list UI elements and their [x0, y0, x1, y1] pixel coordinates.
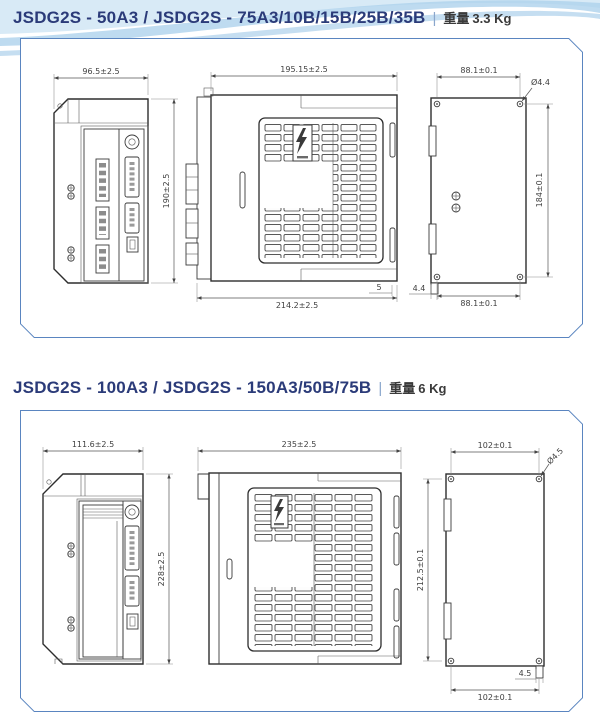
dim-side-offset: 5	[376, 283, 381, 292]
rear-view: 102±0.1 Ø4.5 212.5±0.1 102±0.1	[416, 441, 565, 702]
section1-title-separator: |	[432, 10, 436, 27]
section1-panel-inner: 96.5±2.5 190±2.5	[21, 39, 582, 337]
section1-model-title: JSDG2S - 50A3 / JSDG2S - 75A3/10B/15B/25…	[13, 8, 425, 28]
section1-weight-value: 3.3 Kg	[472, 11, 511, 26]
dim-front-width: 96.5±2.5	[82, 67, 119, 76]
section1-drawing: 96.5±2.5 190±2.5	[21, 39, 582, 337]
front-view: 111.6±2.5 228±2.5	[43, 440, 173, 664]
dim-rear-hole: Ø4.5	[545, 446, 566, 467]
page: JSDG2S - 50A3 / JSDG2S - 75A3/10B/15B/25…	[0, 0, 600, 720]
dim-rear-height: 184±0.1	[535, 173, 544, 208]
section2-title-separator: |	[378, 380, 382, 397]
dim-rear-hole: Ø4.4	[531, 77, 550, 87]
dim-rear-top-width: 88.1±0.1	[460, 66, 497, 75]
dim-rear-hook: 4.5	[519, 669, 532, 678]
side-view: 195.15±2.5 214.2±2.5 5	[186, 65, 397, 310]
section2-model-title: JSDG2S - 100A3 / JSDG2S - 150A3/50B/75B	[13, 378, 371, 398]
side-view: 235±2.5	[198, 440, 401, 664]
dim-rear-bottom-width: 102±0.1	[478, 693, 513, 702]
section2-weight-value: 6 Kg	[418, 381, 446, 396]
section1-title-row: JSDG2S - 50A3 / JSDG2S - 75A3/10B/15B/25…	[13, 8, 511, 28]
section2-weight-label: 重量	[389, 378, 415, 397]
dim-rear-top-width: 102±0.1	[478, 441, 513, 450]
dim-front-height: 228±2.5	[157, 552, 166, 587]
section1-weight-label: 重量	[443, 8, 469, 27]
warning-label	[293, 125, 312, 161]
vent-panel	[259, 118, 383, 263]
warning-label	[271, 496, 288, 528]
vent-panel	[248, 488, 381, 651]
dim-front-height: 190±2.5	[162, 174, 171, 209]
front-view: 96.5±2.5 190±2.5	[54, 67, 178, 283]
section2-panel-inner: 111.6±2.5 228±2.5	[21, 411, 582, 711]
dim-rear-hook: 4.4	[413, 284, 426, 293]
section2-drawing: 111.6±2.5 228±2.5	[21, 411, 582, 711]
rear-view: 88.1±0.1 Ø4.4 184±0.1 88.1±0.1	[409, 66, 553, 308]
dim-side-depth: 235±2.5	[282, 440, 317, 449]
dim-rear-height: 212.5±0.1	[416, 549, 425, 591]
dim-side-depth: 195.15±2.5	[280, 65, 327, 74]
dim-front-width: 111.6±2.5	[72, 440, 114, 449]
section2-drawing-panel: 111.6±2.5 228±2.5	[20, 410, 583, 712]
side-connector-blocks	[186, 164, 198, 265]
dim-rear-bottom-width: 88.1±0.1	[460, 299, 497, 308]
section1-drawing-panel: 96.5±2.5 190±2.5	[20, 38, 583, 338]
dim-side-total: 214.2±2.5	[276, 301, 318, 310]
section2-title-row: JSDG2S - 100A3 / JSDG2S - 150A3/50B/75B …	[13, 378, 446, 398]
